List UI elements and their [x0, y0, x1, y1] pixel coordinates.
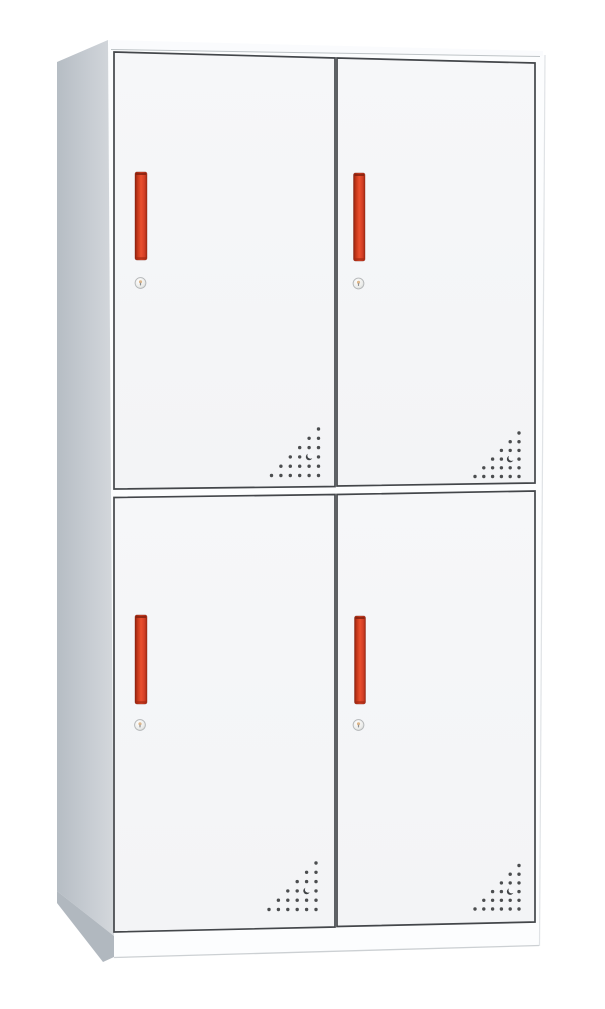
vent-hole	[296, 908, 299, 911]
vent-hole	[298, 455, 301, 458]
door-handle-bottom-cap	[356, 701, 365, 703]
vent-hole	[307, 446, 310, 449]
vent-hole	[491, 907, 494, 910]
vent-hole	[317, 437, 320, 440]
vent-hole	[317, 474, 320, 477]
vent-hole	[491, 466, 494, 469]
vent-crescent-highlight	[307, 453, 313, 459]
vent-hole	[491, 457, 494, 460]
keyhole-slot	[139, 725, 140, 728]
vent-hole	[305, 880, 308, 883]
vent-hole	[473, 907, 476, 910]
cabinet-side-panel	[57, 40, 114, 936]
door-handle	[355, 616, 366, 704]
vent-hole	[482, 899, 485, 902]
vent-hole	[500, 475, 503, 478]
vent-hole	[286, 899, 289, 902]
vent-hole	[298, 446, 301, 449]
vent-hole	[500, 899, 503, 902]
keyhole-slot	[358, 725, 359, 728]
door-handle-top-cap	[136, 173, 146, 175]
vent-crescent-highlight	[305, 887, 311, 893]
locker-cabinet-illustration	[0, 0, 605, 1009]
vent-hole	[298, 474, 301, 477]
vent-hole	[517, 466, 520, 469]
vent-hole	[482, 475, 485, 478]
vent-hole	[317, 465, 320, 468]
keyhole-slot	[140, 283, 141, 286]
vent-hole	[296, 899, 299, 902]
door-top-left	[114, 52, 335, 489]
keyhole-slot	[358, 283, 359, 286]
vent-hole	[305, 899, 308, 902]
vent-hole	[517, 873, 520, 876]
vent-hole	[491, 899, 494, 902]
vent-hole	[314, 880, 317, 883]
vent-hole	[517, 475, 520, 478]
door-face	[337, 491, 535, 927]
vent-hole	[277, 899, 280, 902]
vent-hole	[298, 465, 301, 468]
vent-hole	[314, 889, 317, 892]
vent-hole	[500, 907, 503, 910]
vent-hole	[500, 881, 503, 884]
vent-hole	[509, 449, 512, 452]
vent-hole	[509, 873, 512, 876]
vent-hole	[517, 881, 520, 884]
vent-hole	[509, 899, 512, 902]
product-photo	[0, 0, 605, 1009]
vent-hole	[305, 908, 308, 911]
vent-hole	[473, 475, 476, 478]
vent-hole	[270, 474, 273, 477]
vent-hole	[296, 889, 299, 892]
door-bottom-left	[114, 495, 335, 933]
vent-crescent-highlight	[509, 887, 515, 893]
vent-hole	[286, 889, 289, 892]
vent-hole	[517, 449, 520, 452]
vent-hole	[482, 466, 485, 469]
vent-hole	[482, 907, 485, 910]
vent-hole	[500, 449, 503, 452]
vent-hole	[509, 466, 512, 469]
door-face	[337, 58, 535, 486]
vent-hole	[286, 908, 289, 911]
vent-hole	[314, 899, 317, 902]
vent-hole	[289, 455, 292, 458]
vent-hole	[517, 864, 520, 867]
vent-hole	[500, 457, 503, 460]
door-handle-top-cap	[356, 617, 365, 619]
vent-hole	[509, 907, 512, 910]
vent-hole	[509, 475, 512, 478]
door-handle-top-cap	[136, 616, 146, 618]
vent-hole	[307, 465, 310, 468]
vent-hole	[517, 907, 520, 910]
vent-hole	[317, 446, 320, 449]
vent-hole	[500, 466, 503, 469]
vent-hole	[500, 890, 503, 893]
vent-hole	[509, 881, 512, 884]
vent-hole	[289, 465, 292, 468]
vent-hole	[305, 871, 308, 874]
vent-hole	[307, 437, 310, 440]
vent-hole	[277, 908, 280, 911]
vent-hole	[314, 908, 317, 911]
door-handle	[135, 615, 147, 704]
vent-hole	[307, 474, 310, 477]
vent-hole	[517, 899, 520, 902]
door-handle-bottom-cap	[136, 701, 146, 703]
door-handle-top-cap	[355, 174, 365, 176]
vent-hole	[296, 880, 299, 883]
vent-crescent-highlight	[509, 455, 515, 461]
door-handle-bottom-cap	[136, 257, 146, 259]
vent-hole	[517, 440, 520, 443]
vent-hole	[267, 908, 270, 911]
vent-hole	[517, 457, 520, 460]
vent-hole	[289, 474, 292, 477]
door-handle	[354, 173, 366, 261]
door-top-right	[337, 58, 535, 486]
vent-hole	[491, 475, 494, 478]
vent-hole	[517, 890, 520, 893]
door-handle-bottom-cap	[355, 258, 365, 260]
vent-hole	[517, 431, 520, 434]
vent-hole	[314, 861, 317, 864]
vent-hole	[317, 455, 320, 458]
door-handle	[135, 172, 147, 260]
vent-hole	[509, 440, 512, 443]
vent-hole	[279, 474, 282, 477]
vent-hole	[491, 890, 494, 893]
door-bottom-right	[337, 491, 535, 927]
vent-hole	[314, 871, 317, 874]
door-face	[114, 52, 335, 489]
vent-hole	[279, 465, 282, 468]
vent-hole	[317, 427, 320, 430]
door-face	[114, 495, 335, 933]
